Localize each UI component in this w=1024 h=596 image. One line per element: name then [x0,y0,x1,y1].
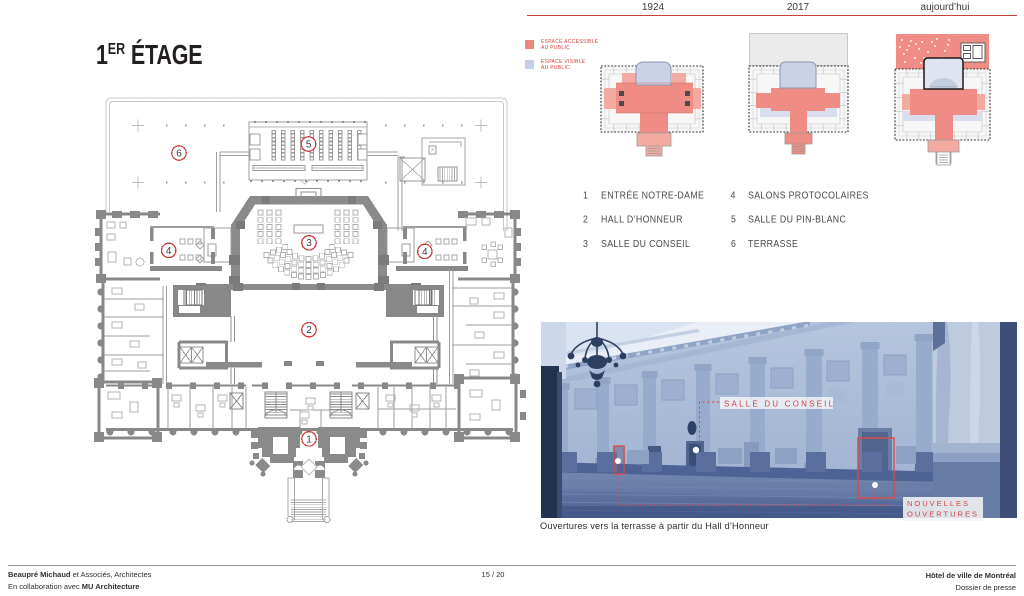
svg-text:OUVERTURES: OUVERTURES [907,510,979,519]
svg-text:3: 3 [306,238,312,249]
svg-text:SALLE DU CONSEIL: SALLE DU CONSEIL [724,400,835,409]
svg-text:6: 6 [176,148,182,159]
svg-text:5: 5 [306,139,312,150]
svg-text:4: 4 [422,247,428,258]
svg-text:1: 1 [306,434,312,445]
svg-text:2: 2 [306,325,312,336]
svg-text:NOUVELLES: NOUVELLES [907,499,970,508]
svg-text:4: 4 [166,246,172,257]
